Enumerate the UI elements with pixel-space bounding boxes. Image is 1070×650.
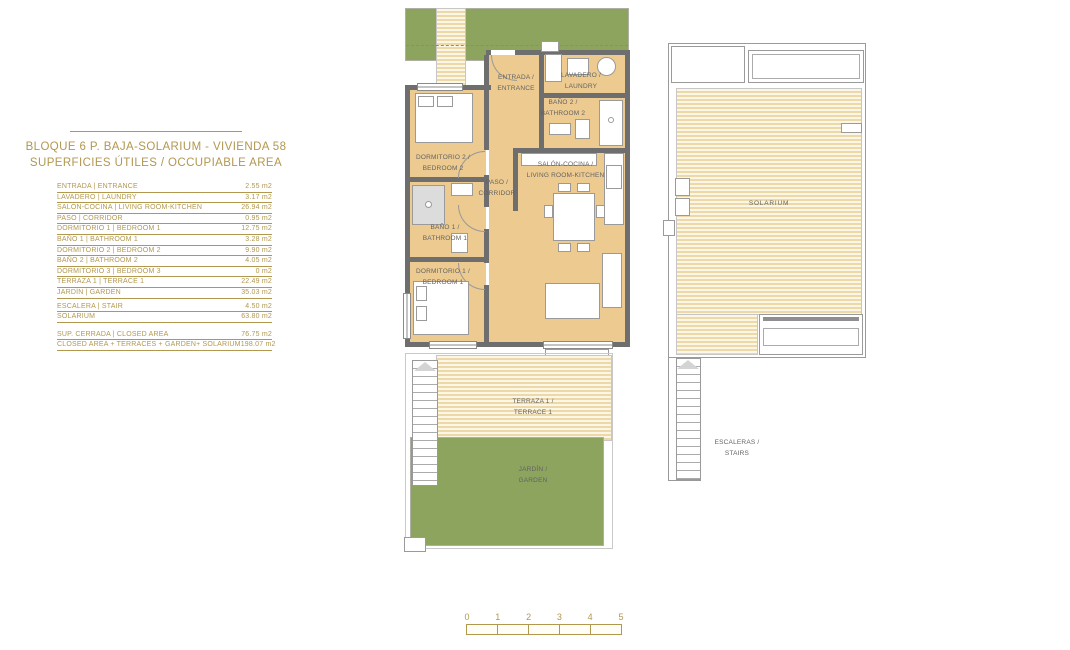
table-row: SUP. CERRADA | CLOSED AREA76.75 m2 xyxy=(57,331,272,341)
entry-vent xyxy=(541,41,559,52)
row-value: 63.80 m2 xyxy=(241,313,272,321)
bedroom1-window xyxy=(429,341,477,349)
table-row: SOLARIUM63.80 m2 xyxy=(57,313,272,323)
plot-dashed-line xyxy=(406,45,628,46)
scale-cell xyxy=(529,625,560,634)
area-table: ENTRADA | ENTRANCE2.55 m2LAVADERO | LAUN… xyxy=(57,183,272,355)
solarium-floor-plan: SOLARIUM ESCALERAS / STAIRS xyxy=(655,40,880,530)
row-value: 198.07 m2 xyxy=(241,341,276,349)
label-bedroom2: DORMITORIO 2 / BEDROOM 2 xyxy=(411,153,475,174)
label-terrace: TERRAZA 1 / TERRACE 1 xyxy=(493,397,573,418)
label-bathroom1: BAÑO 1 / BATHROOM 1 xyxy=(413,223,477,244)
garden-stairs xyxy=(412,360,438,486)
scale-number: 1 xyxy=(493,611,503,623)
solarium-unit-2 xyxy=(675,198,690,216)
row-value: 9.90 m2 xyxy=(245,247,272,255)
table-row: TERRAZA 1 | TERRACE 122.49 m2 xyxy=(57,278,272,288)
bedroom1-side-window xyxy=(403,293,411,339)
title-rule xyxy=(70,131,242,132)
dining-chair-1 xyxy=(558,183,571,192)
row-value: 0.95 m2 xyxy=(245,215,272,223)
solarium-unit-1 xyxy=(675,178,690,196)
scale-number: 3 xyxy=(554,611,564,623)
row-value: 3.28 m2 xyxy=(245,236,272,244)
scale-numbers: 012345 xyxy=(462,611,626,623)
wall-bathroom1-bottom xyxy=(405,257,486,262)
table-row: DORMITORIO 1 | BEDROOM 112.75 m2 xyxy=(57,225,272,235)
dining-chair-2 xyxy=(577,183,590,192)
bathroom2-shower xyxy=(599,100,623,146)
scale-number: 5 xyxy=(616,611,626,623)
row-label: SALÓN-COCINA | LIVING ROOM-KITCHEN xyxy=(57,204,202,212)
row-value: 35.03 m2 xyxy=(241,289,272,297)
label-entrance: ENTRADA / ENTRANCE xyxy=(491,73,541,94)
row-label: BAÑO 1 | BATHROOM 1 xyxy=(57,236,138,244)
title-block: BLOQUE 6 P. BAJA-SOLARIUM - VIVIENDA 58 … xyxy=(18,131,294,171)
row-label: SOLARIUM xyxy=(57,313,95,321)
row-label: SUP. CERRADA | CLOSED AREA xyxy=(57,331,169,339)
row-label: JARDÍN | GARDEN xyxy=(57,289,121,297)
solarium-stairs xyxy=(676,358,701,480)
scale-number: 4 xyxy=(585,611,595,623)
solarium-top-box-right-inner xyxy=(752,54,860,79)
scale-cell xyxy=(560,625,591,634)
solarium-top-box-left xyxy=(671,46,745,83)
solarium-bench-inner xyxy=(763,328,859,346)
row-label: ESCALERA | STAIR xyxy=(57,303,123,311)
row-value: 12.75 m2 xyxy=(241,225,272,233)
dining-chair-5 xyxy=(544,205,553,218)
bedroom2-pillow-2 xyxy=(437,96,453,107)
table-row: ESCALERA | STAIR4.50 m2 xyxy=(57,303,272,313)
dining-chair-4 xyxy=(577,243,590,252)
bathroom1-drain-icon xyxy=(425,201,432,208)
entry-walkway xyxy=(436,8,466,88)
table-row: JARDÍN | GARDEN35.03 m2 xyxy=(57,289,272,299)
area-table-summary: SUP. CERRADA | CLOSED AREA76.75 m2CLOSED… xyxy=(57,331,272,351)
area-table-main: ENTRADA | ENTRANCE2.55 m2LAVADERO | LAUN… xyxy=(57,183,272,299)
row-value: 4.05 m2 xyxy=(245,257,272,265)
row-label: TERRAZA 1 | TERRACE 1 xyxy=(57,278,144,286)
bedroom2-window xyxy=(417,83,463,91)
label-living: SALÓN-COCINA / LIVING ROOM-KITCHEN xyxy=(513,160,618,181)
label-bedroom1: DORMITORIO 1 / BEDROOM 1 xyxy=(411,267,475,288)
scale-number: 2 xyxy=(524,611,534,623)
row-label: DORMITORIO 1 | BEDROOM 1 xyxy=(57,225,161,233)
row-label: ENTRADA | ENTRANCE xyxy=(57,183,138,191)
row-label: PASO | CORRIDOR xyxy=(57,215,123,223)
stairs-arrow-icon xyxy=(414,362,436,371)
sofa-chaise xyxy=(602,253,622,308)
solarium-top-box-right xyxy=(748,50,864,83)
table-row: DORMITORIO 2 | BEDROOM 29.90 m2 xyxy=(57,247,272,257)
row-value: 0 m2 xyxy=(256,268,272,276)
table-row: DORMITORIO 3 | BEDROOM 30 m2 xyxy=(57,268,272,278)
label-bathroom2: BAÑO 2 / BATHROOM 2 xyxy=(531,98,595,119)
table-row: CLOSED AREA + TERRACES + GARDEN+ SOLARIU… xyxy=(57,341,272,351)
scale-cell xyxy=(498,625,529,634)
table-row: LAVADERO | LAUNDRY3.17 m2 xyxy=(57,194,272,204)
scale-number: 0 xyxy=(462,611,472,623)
table-row: SALÓN-COCINA | LIVING ROOM-KITCHEN26.94 … xyxy=(57,204,272,214)
floor-plan-sheet: BLOQUE 6 P. BAJA-SOLARIUM - VIVIENDA 58 … xyxy=(0,0,1070,650)
wall-corridor-4 xyxy=(484,285,489,342)
solarium-wall-box xyxy=(663,220,675,236)
terrace-slider-door xyxy=(543,341,613,349)
page-subtitle: SUPERFICIES ÚTILES / OCCUPIABLE AREA xyxy=(18,156,294,172)
label-garden: JARDÍN / GARDEN xyxy=(493,465,573,486)
solarium-bench-rail xyxy=(763,317,859,321)
dining-chair-3 xyxy=(558,243,571,252)
stair-shaft-bottom-line xyxy=(668,480,701,481)
bathroom2-drain-icon xyxy=(608,117,614,123)
row-value: 22.49 m2 xyxy=(241,278,272,286)
dining-table xyxy=(553,193,595,241)
bathroom2-toilet xyxy=(575,119,590,139)
scale-cell xyxy=(467,625,498,634)
table-row: ENTRADA | ENTRANCE2.55 m2 xyxy=(57,183,272,193)
table-row: PASO | CORRIDOR0.95 m2 xyxy=(57,215,272,225)
row-label: LAVADERO | LAUNDRY xyxy=(57,194,137,202)
area-table-extra: ESCALERA | STAIR4.50 m2SOLARIUM63.80 m2 xyxy=(57,303,272,323)
solarium-right-box xyxy=(841,123,862,133)
solarium-deck-extension xyxy=(676,314,758,355)
bedroom1-pillow-2 xyxy=(416,306,427,321)
row-label: DORMITORIO 2 | BEDROOM 2 xyxy=(57,247,161,255)
table-row: BAÑO 2 | BATHROOM 24.05 m2 xyxy=(57,257,272,267)
scale-bar: 012345 xyxy=(462,611,626,635)
row-label: BAÑO 2 | BATHROOM 2 xyxy=(57,257,138,265)
label-solarium: SOLARIUM xyxy=(715,199,823,210)
scale-cell xyxy=(591,625,621,634)
row-value: 76.75 m2 xyxy=(241,331,272,339)
row-value: 4.50 m2 xyxy=(245,303,272,311)
garden-corner-step xyxy=(404,537,426,552)
row-value: 3.17 m2 xyxy=(245,194,272,202)
bathroom1-sink xyxy=(451,183,473,196)
row-label: CLOSED AREA + TERRACES + GARDEN+ SOLARIU… xyxy=(57,341,241,349)
row-label: DORMITORIO 3 | BEDROOM 3 xyxy=(57,268,161,276)
row-value: 2.55 m2 xyxy=(245,183,272,191)
garden-area xyxy=(410,437,604,546)
stair-shaft-left-line xyxy=(668,358,669,480)
table-row: BAÑO 1 | BATHROOM 13.28 m2 xyxy=(57,236,272,246)
bedroom2-pillow-1 xyxy=(418,96,434,107)
page-title: BLOQUE 6 P. BAJA-SOLARIUM - VIVIENDA 58 xyxy=(18,140,294,156)
label-escaleras: ESCALERAS / STAIRS xyxy=(699,438,775,459)
label-laundry: LAVADERO / LAUNDRY xyxy=(549,71,613,92)
sofa xyxy=(545,283,600,319)
scale-rect xyxy=(466,624,622,635)
bathroom2-sink xyxy=(549,123,571,135)
row-value: 26.94 m2 xyxy=(241,204,272,212)
wall-corridor-1 xyxy=(484,55,489,150)
dining-chair-6 xyxy=(596,205,605,218)
main-floor-plan: ENTRADA / ENTRANCE LAVADERO / LAUNDRY BA… xyxy=(403,5,631,551)
solarium-stairs-arrow-icon xyxy=(677,360,699,369)
